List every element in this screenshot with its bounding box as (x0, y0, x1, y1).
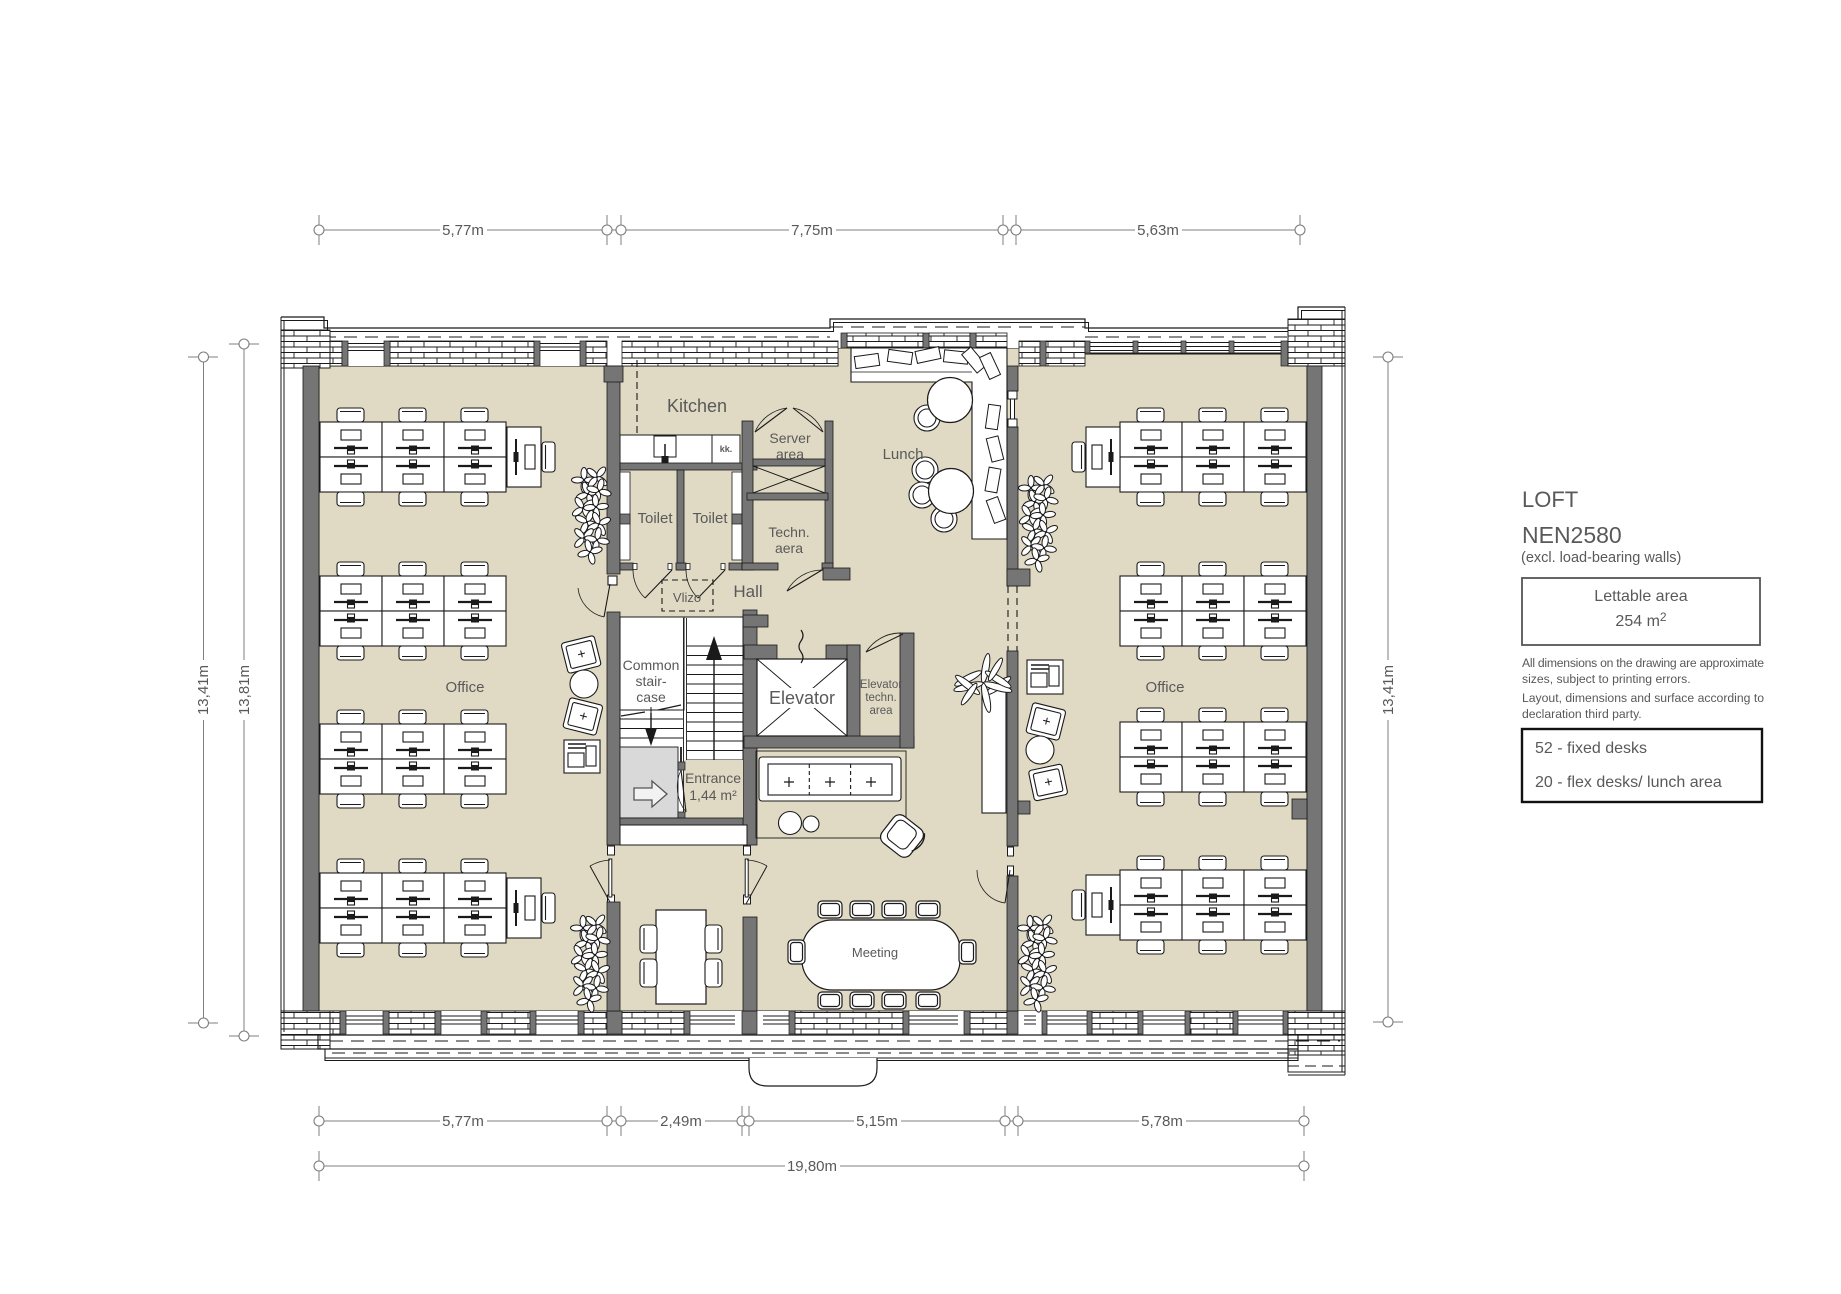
svg-text:Kitchen: Kitchen (667, 396, 727, 416)
svg-text:case: case (636, 689, 666, 705)
svg-text:kk.: kk. (720, 444, 733, 454)
svg-text:Lettable area: Lettable area (1594, 588, 1688, 605)
svg-text:NEN2580: NEN2580 (1522, 522, 1622, 548)
svg-text:Toilet: Toilet (692, 510, 728, 527)
svg-text:2,49m: 2,49m (660, 1113, 702, 1130)
svg-text:Toilet: Toilet (637, 510, 673, 527)
svg-text:7,75m: 7,75m (791, 222, 833, 239)
svg-text:Layout, dimensions and surface: Layout, dimensions and surface according… (1522, 691, 1764, 705)
svg-text:sizes, subject to printing err: sizes, subject to printing errors. (1522, 672, 1691, 686)
svg-text:Office: Office (1146, 679, 1185, 696)
svg-text:Elevator: Elevator (860, 679, 902, 691)
svg-text:Entrance: Entrance (685, 770, 741, 786)
svg-text:5,15m: 5,15m (856, 1113, 898, 1130)
svg-text:5,77m: 5,77m (442, 1113, 484, 1130)
svg-text:13,41m: 13,41m (195, 665, 212, 715)
svg-text:Techn.: Techn. (768, 524, 809, 540)
svg-text:aera: aera (775, 540, 803, 556)
svg-text:Common: Common (623, 657, 680, 673)
svg-text:13,41m: 13,41m (1380, 665, 1397, 715)
svg-text:Vlizo: Vlizo (673, 590, 701, 605)
svg-text:5,77m: 5,77m (442, 222, 484, 239)
svg-text:Server: Server (769, 430, 811, 446)
svg-text:Meeting: Meeting (852, 945, 898, 960)
svg-text:LOFT: LOFT (1522, 487, 1578, 512)
svg-text:Lunch: Lunch (883, 446, 924, 463)
svg-text:19,80m: 19,80m (787, 1158, 837, 1175)
svg-text:stair-: stair- (635, 673, 666, 689)
svg-text:Elevator: Elevator (769, 688, 835, 708)
svg-text:Hall: Hall (733, 582, 762, 601)
svg-text:Office: Office (446, 679, 485, 696)
svg-text:254 m2: 254 m2 (1615, 610, 1666, 630)
svg-text:20 - flex desks/ lunch area: 20 - flex desks/ lunch area (1535, 774, 1722, 791)
svg-text:52 - fixed desks: 52 - fixed desks (1535, 740, 1647, 757)
svg-text:All dimensions on the drawing: All dimensions on the drawing are approx… (1522, 656, 1764, 670)
svg-text:5,78m: 5,78m (1141, 1113, 1183, 1130)
svg-text:area: area (869, 705, 893, 717)
svg-text:declaration third party.: declaration third party. (1522, 707, 1642, 721)
svg-text:area: area (776, 446, 804, 462)
svg-text:13,81m: 13,81m (236, 665, 253, 715)
svg-text:techn.: techn. (865, 692, 896, 704)
svg-text:1,44 m²: 1,44 m² (689, 787, 737, 803)
svg-text:(excl. load-bearing walls): (excl. load-bearing walls) (1521, 550, 1681, 566)
svg-text:5,63m: 5,63m (1137, 222, 1179, 239)
